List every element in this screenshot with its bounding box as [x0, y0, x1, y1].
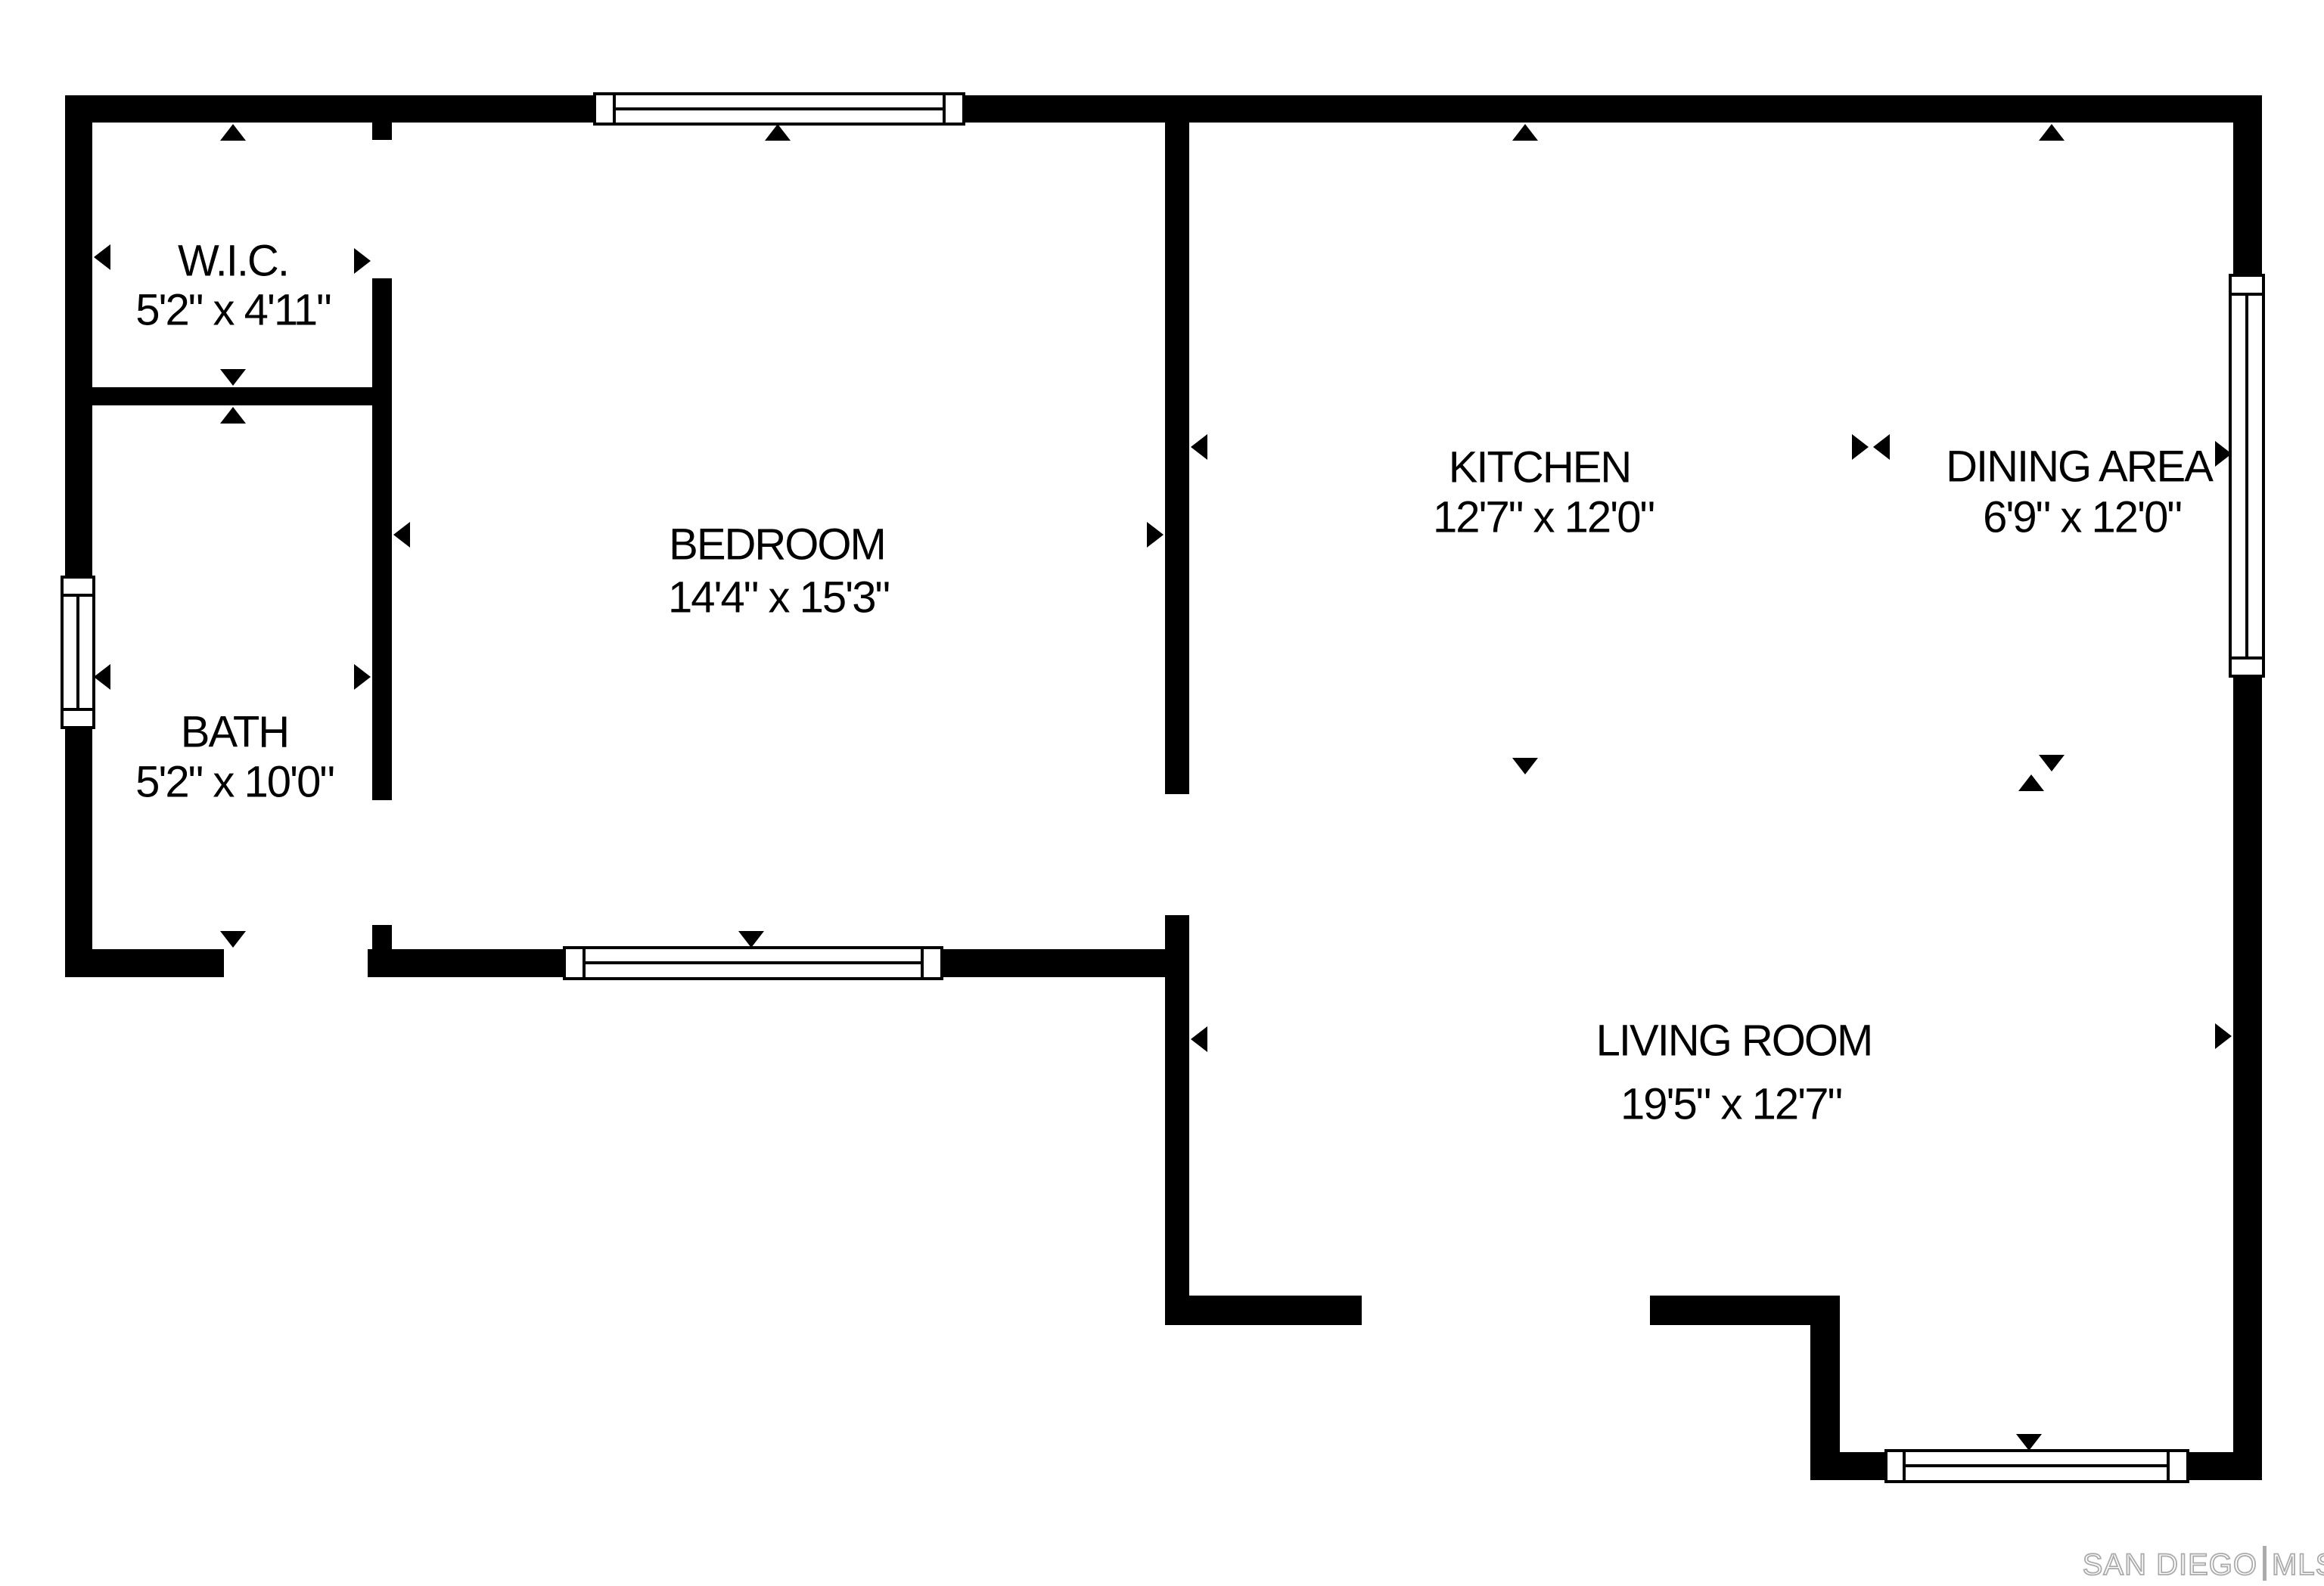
wall-top-left-segment: [65, 95, 596, 123]
room-dims-wic: 5'2" x 4'11": [135, 286, 331, 335]
wall-living-bottom-left-segment: [1165, 1296, 1362, 1325]
wall-wic-bath-divider: [92, 387, 372, 405]
mls-watermark: SAN DIEGO MLS: [2083, 1546, 2324, 1581]
room-label-dining: DINING AREA: [1946, 442, 2214, 492]
watermark-separator: [2263, 1546, 2267, 1581]
room-label-bedroom: BEDROOM: [669, 520, 885, 570]
room-dims-bath: 5'2" x 10'0": [135, 758, 334, 807]
watermark-suffix-text: MLS: [2272, 1548, 2324, 1581]
wall-step-bottom-right-segment: [2186, 1452, 2233, 1480]
watermark-brand-text: SAN DIEGO: [2083, 1548, 2257, 1581]
wall-bedroom-right-lower: [1165, 915, 1189, 1325]
room-dims-bedroom: 14'4" x 15'3": [668, 573, 890, 622]
wall-bottom-right-segment: [940, 949, 1186, 977]
window-bedroom-bottom: [564, 948, 942, 979]
wall-bottom-mid-segment: [368, 949, 566, 977]
room-dims-living: 19'5" x 12'7": [1620, 1080, 1842, 1129]
room-label-living: LIVING ROOM: [1596, 1016, 1872, 1066]
wall-top-right-segment: [962, 95, 2262, 123]
window-bedroom-top: [595, 94, 964, 124]
floor-plan: W.I.C. 5'2" x 4'11" BATH 5'2" x 10'0" BE…: [0, 0, 2324, 1586]
wall-right-upper-segment: [2233, 95, 2262, 277]
window-bath-left: [62, 577, 94, 728]
wall-left-upper-segment: [65, 95, 92, 579]
wall-right-lower-segment: [2233, 675, 2262, 1480]
window-dining-right: [2230, 275, 2263, 676]
wall-bottom-left-segment: [65, 949, 224, 977]
room-label-kitchen: KITCHEN: [1449, 443, 1631, 492]
room-dims-dining: 6'9" x 12'0": [1983, 493, 2181, 542]
plan-background: [0, 0, 2324, 1586]
wall-divider-main: [372, 278, 392, 800]
wall-step-bottom-left-segment: [1810, 1452, 1887, 1480]
wall-divider-bottom-stub: [372, 925, 392, 977]
wall-divider-top-stub: [372, 123, 392, 140]
room-label-wic: W.I.C.: [178, 237, 288, 286]
wall-bedroom-right-upper: [1165, 123, 1189, 794]
window-living-bottom: [1886, 1451, 2188, 1482]
room-dims-kitchen: 12'7" x 12'0": [1433, 493, 1654, 542]
wall-left-lower-segment: [65, 726, 92, 977]
room-label-bath: BATH: [181, 708, 288, 757]
